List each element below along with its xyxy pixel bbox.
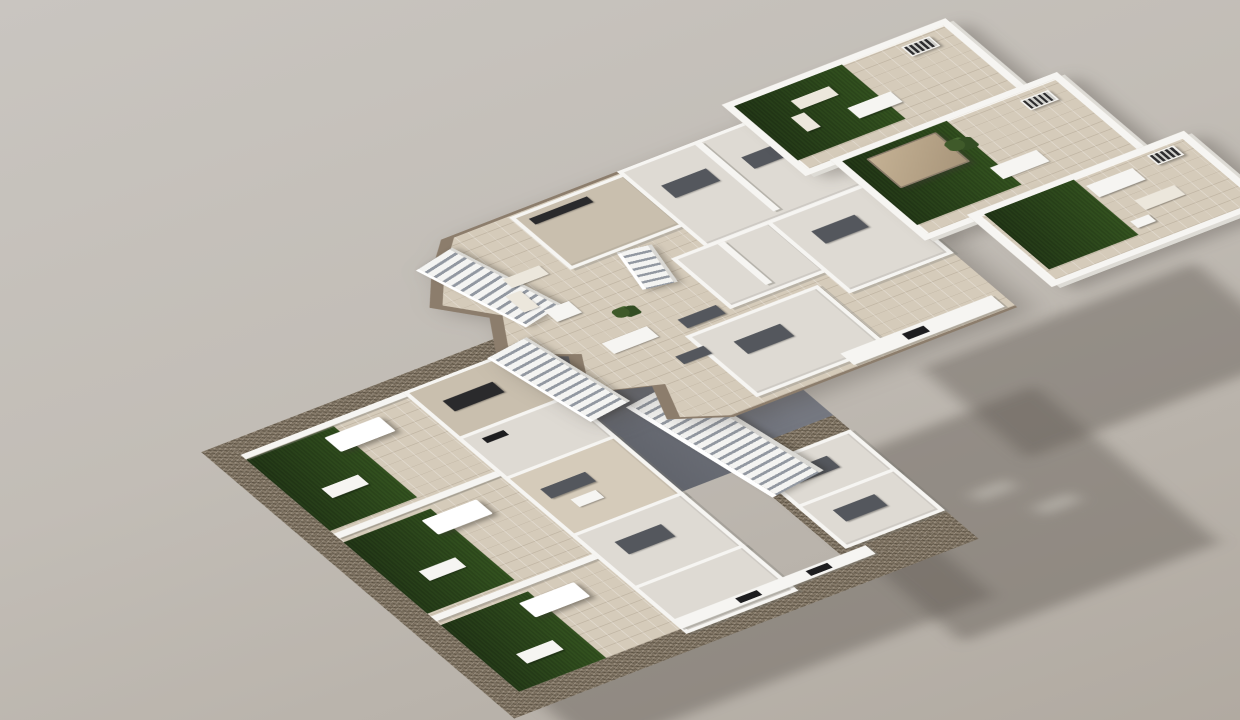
coffee-table (571, 490, 605, 507)
bed (833, 494, 888, 521)
bed (615, 524, 676, 554)
side-table (1130, 214, 1156, 228)
shadow-window-slit (1033, 493, 1080, 515)
wall-tv-panel (482, 430, 509, 443)
ground-plane (0, 0, 1240, 720)
shadow-window-slit (969, 479, 1016, 501)
barbecue-counter (1020, 90, 1059, 110)
bed (661, 168, 720, 198)
barbecue-counter (1147, 145, 1185, 165)
outdoor-dining-table (990, 150, 1050, 179)
dining-table-dark (443, 382, 505, 412)
bed (734, 324, 795, 354)
barbecue-counter (901, 36, 940, 56)
kitchen-counter (529, 196, 594, 224)
architectural-render-canvas (0, 0, 1240, 720)
outdoor-sofa (1134, 185, 1185, 210)
outdoor-dining-table (1086, 168, 1146, 197)
interior-wall (718, 241, 773, 284)
